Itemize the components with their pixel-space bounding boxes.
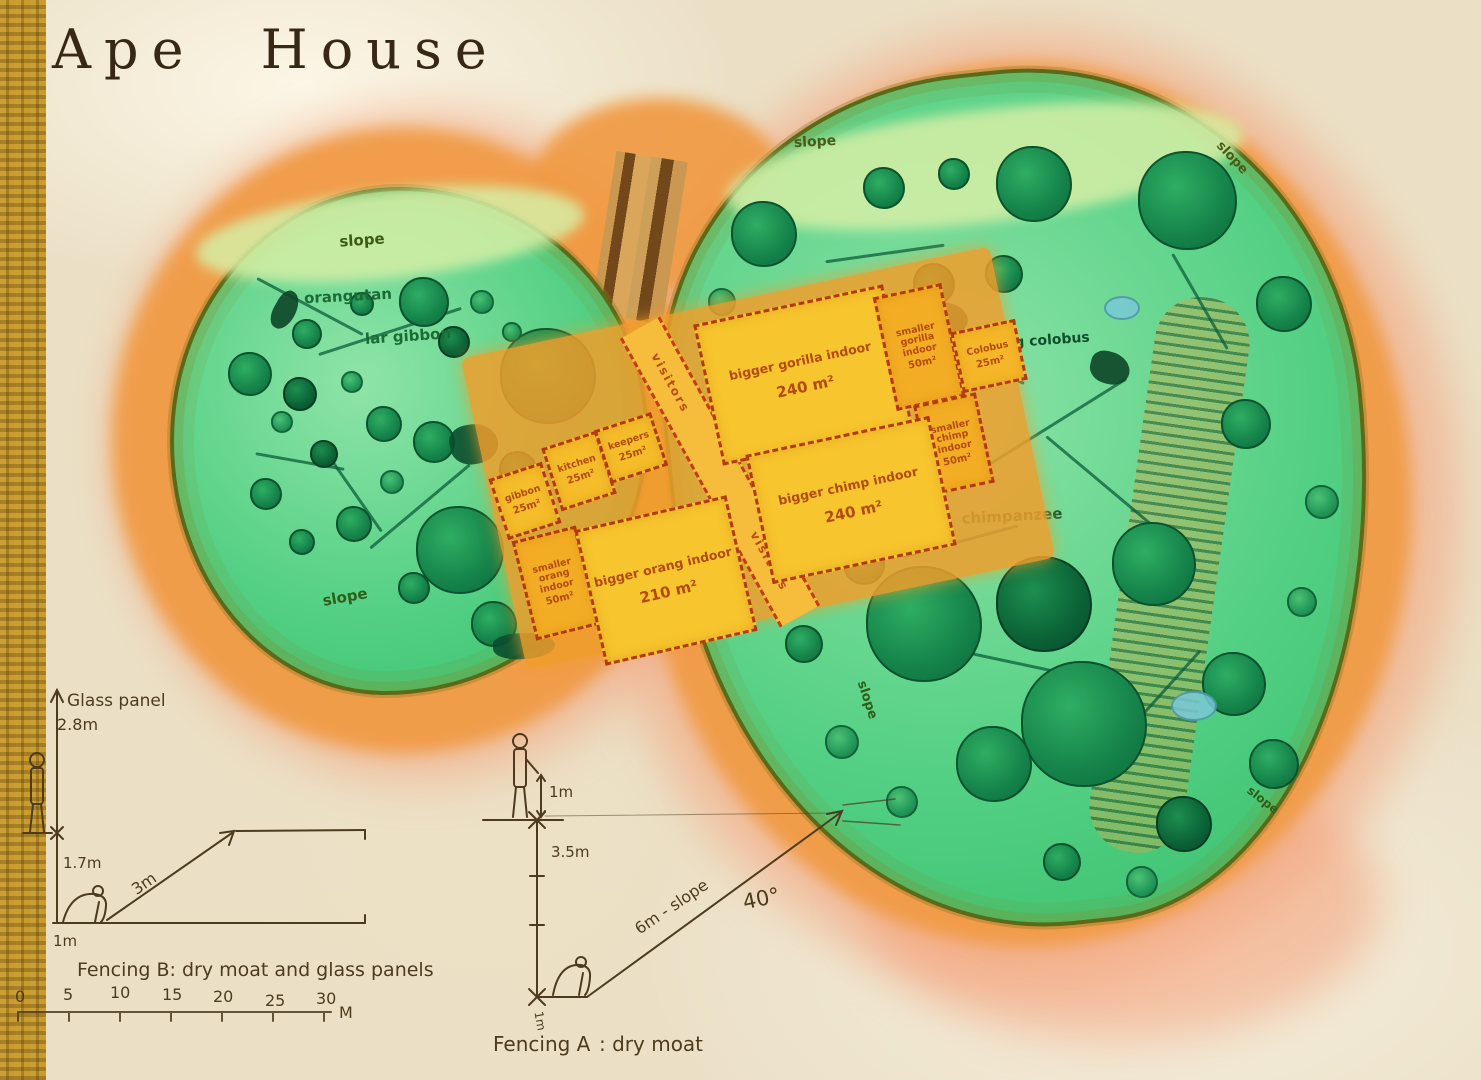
tree: [1112, 522, 1196, 606]
tree: [938, 158, 970, 190]
room-area: 210 m²: [638, 576, 699, 607]
glass-height-value: 2.8m: [57, 715, 98, 734]
ledge-a-value: 1m: [531, 1010, 548, 1031]
scale-tick-30: 30: [316, 989, 336, 1008]
tree: [1021, 661, 1147, 787]
tree: [271, 411, 293, 433]
fencing-a-caption-rest: : dry moat: [599, 1032, 703, 1056]
pond: [1171, 691, 1217, 721]
room-label: smaller orang indoor: [522, 555, 588, 599]
tree: [1256, 276, 1312, 332]
angle-value: 40°: [741, 883, 782, 914]
scale-tick-0: 0: [15, 987, 25, 1006]
tree: [1305, 485, 1339, 519]
tree: [863, 167, 905, 209]
tree: [1249, 739, 1299, 789]
glass-panel-label: Glass panel: [67, 691, 166, 711]
person-figure: [513, 734, 527, 748]
tree: [366, 406, 402, 442]
scale-bar: [18, 1012, 331, 1021]
room-label: bigger orang indoor: [593, 544, 733, 589]
slope-width-value: 3m: [128, 868, 160, 898]
fencing-b-caption: Fencing B: dry moat and glass panels: [77, 959, 434, 981]
tree: [1287, 587, 1317, 617]
ape-figure: [553, 965, 590, 995]
room-label: bigger gorilla indoor: [728, 340, 873, 383]
scale-tick-20: 20: [213, 987, 233, 1006]
tree: [470, 290, 494, 314]
room-area: 240 m²: [775, 372, 836, 402]
moat-depth-a-value: 3.5m: [551, 843, 589, 861]
room-label: bigger chimp indoor: [777, 465, 919, 508]
tree: [292, 319, 322, 349]
scale-tick-5: 5: [63, 985, 73, 1004]
label-slope-right-top: slope: [793, 133, 836, 151]
ape-house-plan: slope orangutan lar gibbon slope slope s…: [0, 0, 1481, 1080]
tree: [341, 371, 363, 393]
head-clearance-value: 1m: [549, 783, 573, 801]
tree: [228, 352, 272, 396]
tree: [1043, 843, 1081, 881]
ape-figure: [63, 894, 106, 922]
fencing-a-caption: Fencing A: [493, 1032, 591, 1056]
tree: [398, 572, 430, 604]
tree: [1156, 796, 1212, 852]
room-area: 240 m²: [823, 497, 884, 527]
tree: [380, 470, 404, 494]
tree: [996, 556, 1092, 652]
tree: [399, 277, 449, 327]
scale-tick-10: 10: [110, 983, 130, 1002]
scale-tick-25: 25: [265, 991, 285, 1010]
tree: [956, 726, 1032, 802]
tree: [785, 625, 823, 663]
tree: [416, 506, 504, 594]
tree: [996, 146, 1072, 222]
tree: [336, 506, 372, 542]
tree: [731, 201, 797, 267]
scale-unit: M: [339, 1003, 353, 1022]
ledge-b-value: 1m: [53, 932, 77, 950]
tree: [1138, 151, 1237, 250]
fencing-b-diagram: Glass panel 2.8m 1.7m 3m 1m Fencing B: d…: [15, 680, 445, 1080]
tree: [1126, 866, 1158, 898]
tree: [310, 440, 338, 468]
tree: [250, 478, 282, 510]
scale-tick-15: 15: [162, 985, 182, 1004]
pond: [1104, 296, 1140, 320]
person-figure: [30, 753, 44, 767]
label-slope-left-top: slope: [339, 229, 385, 250]
tree: [1221, 399, 1271, 449]
moat-depth-b-value: 1.7m: [63, 854, 101, 872]
tree: [289, 529, 315, 555]
fencing-a-diagram: 1m 3.5m 6m - slope 40° 1m Fencing A : dr…: [475, 725, 935, 1075]
tree: [502, 322, 522, 342]
tree: [283, 377, 317, 411]
room-label: smaller gorilla indoor: [883, 319, 952, 362]
slope-length-value: 6m - slope: [631, 875, 711, 938]
page-title: Ape House: [52, 18, 500, 81]
